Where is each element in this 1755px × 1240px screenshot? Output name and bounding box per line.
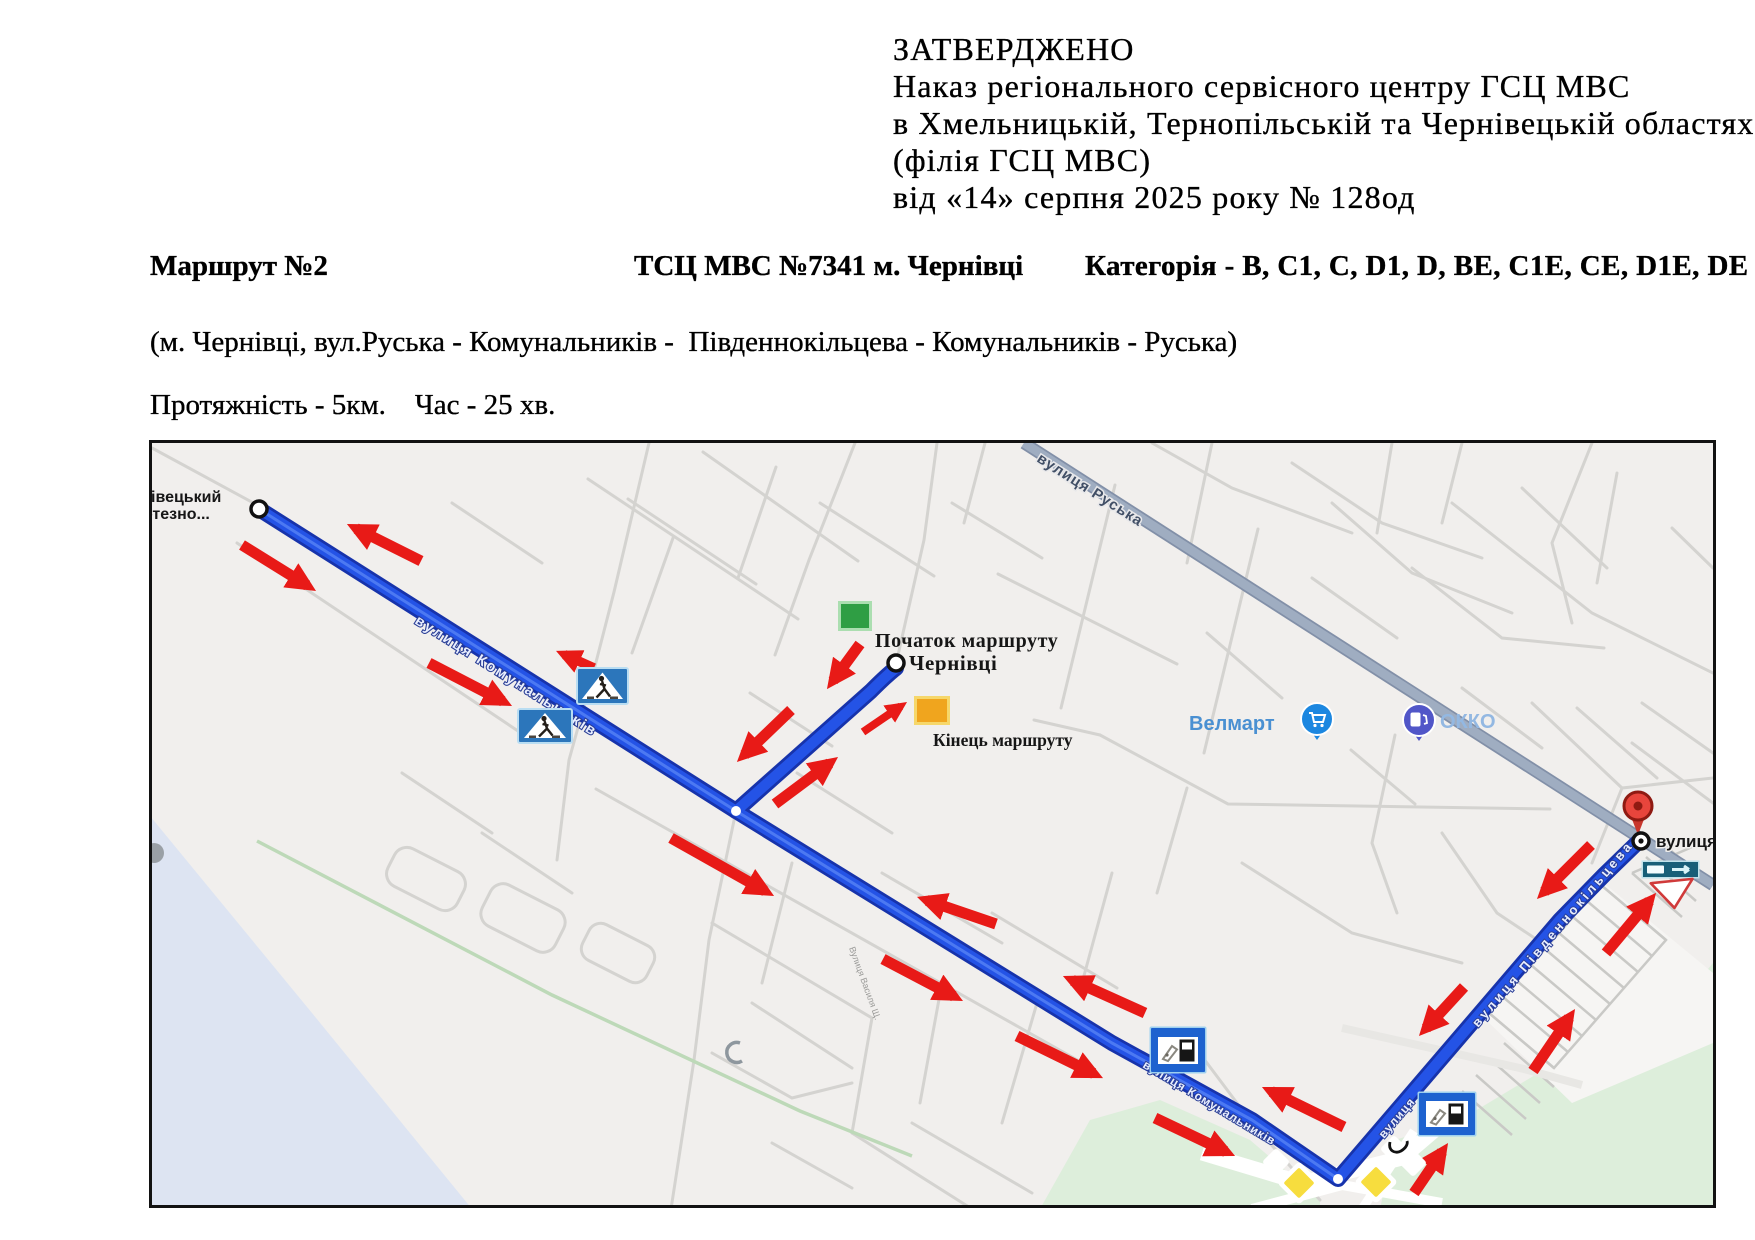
- svg-text:вулиця: вулиця: [1656, 832, 1713, 851]
- svg-text:Чернівці: Чернівці: [909, 651, 997, 675]
- svg-text:Кінець маршруту: Кінець маршруту: [933, 730, 1073, 750]
- svg-text:Початок маршруту: Початок маршруту: [875, 630, 1058, 652]
- svg-text:отезно...: отезно...: [152, 506, 210, 523]
- svg-text:Велмарт: Велмарт: [1189, 713, 1275, 735]
- svg-text:івецький: івецький: [152, 489, 221, 506]
- svg-text:ОККО: ОККО: [1440, 711, 1496, 733]
- svg-text:вулиця Руська: вулиця Руська: [1034, 450, 1146, 530]
- svg-text:Вулиця Василя Щ.: Вулиця Василя Щ.: [847, 945, 883, 1021]
